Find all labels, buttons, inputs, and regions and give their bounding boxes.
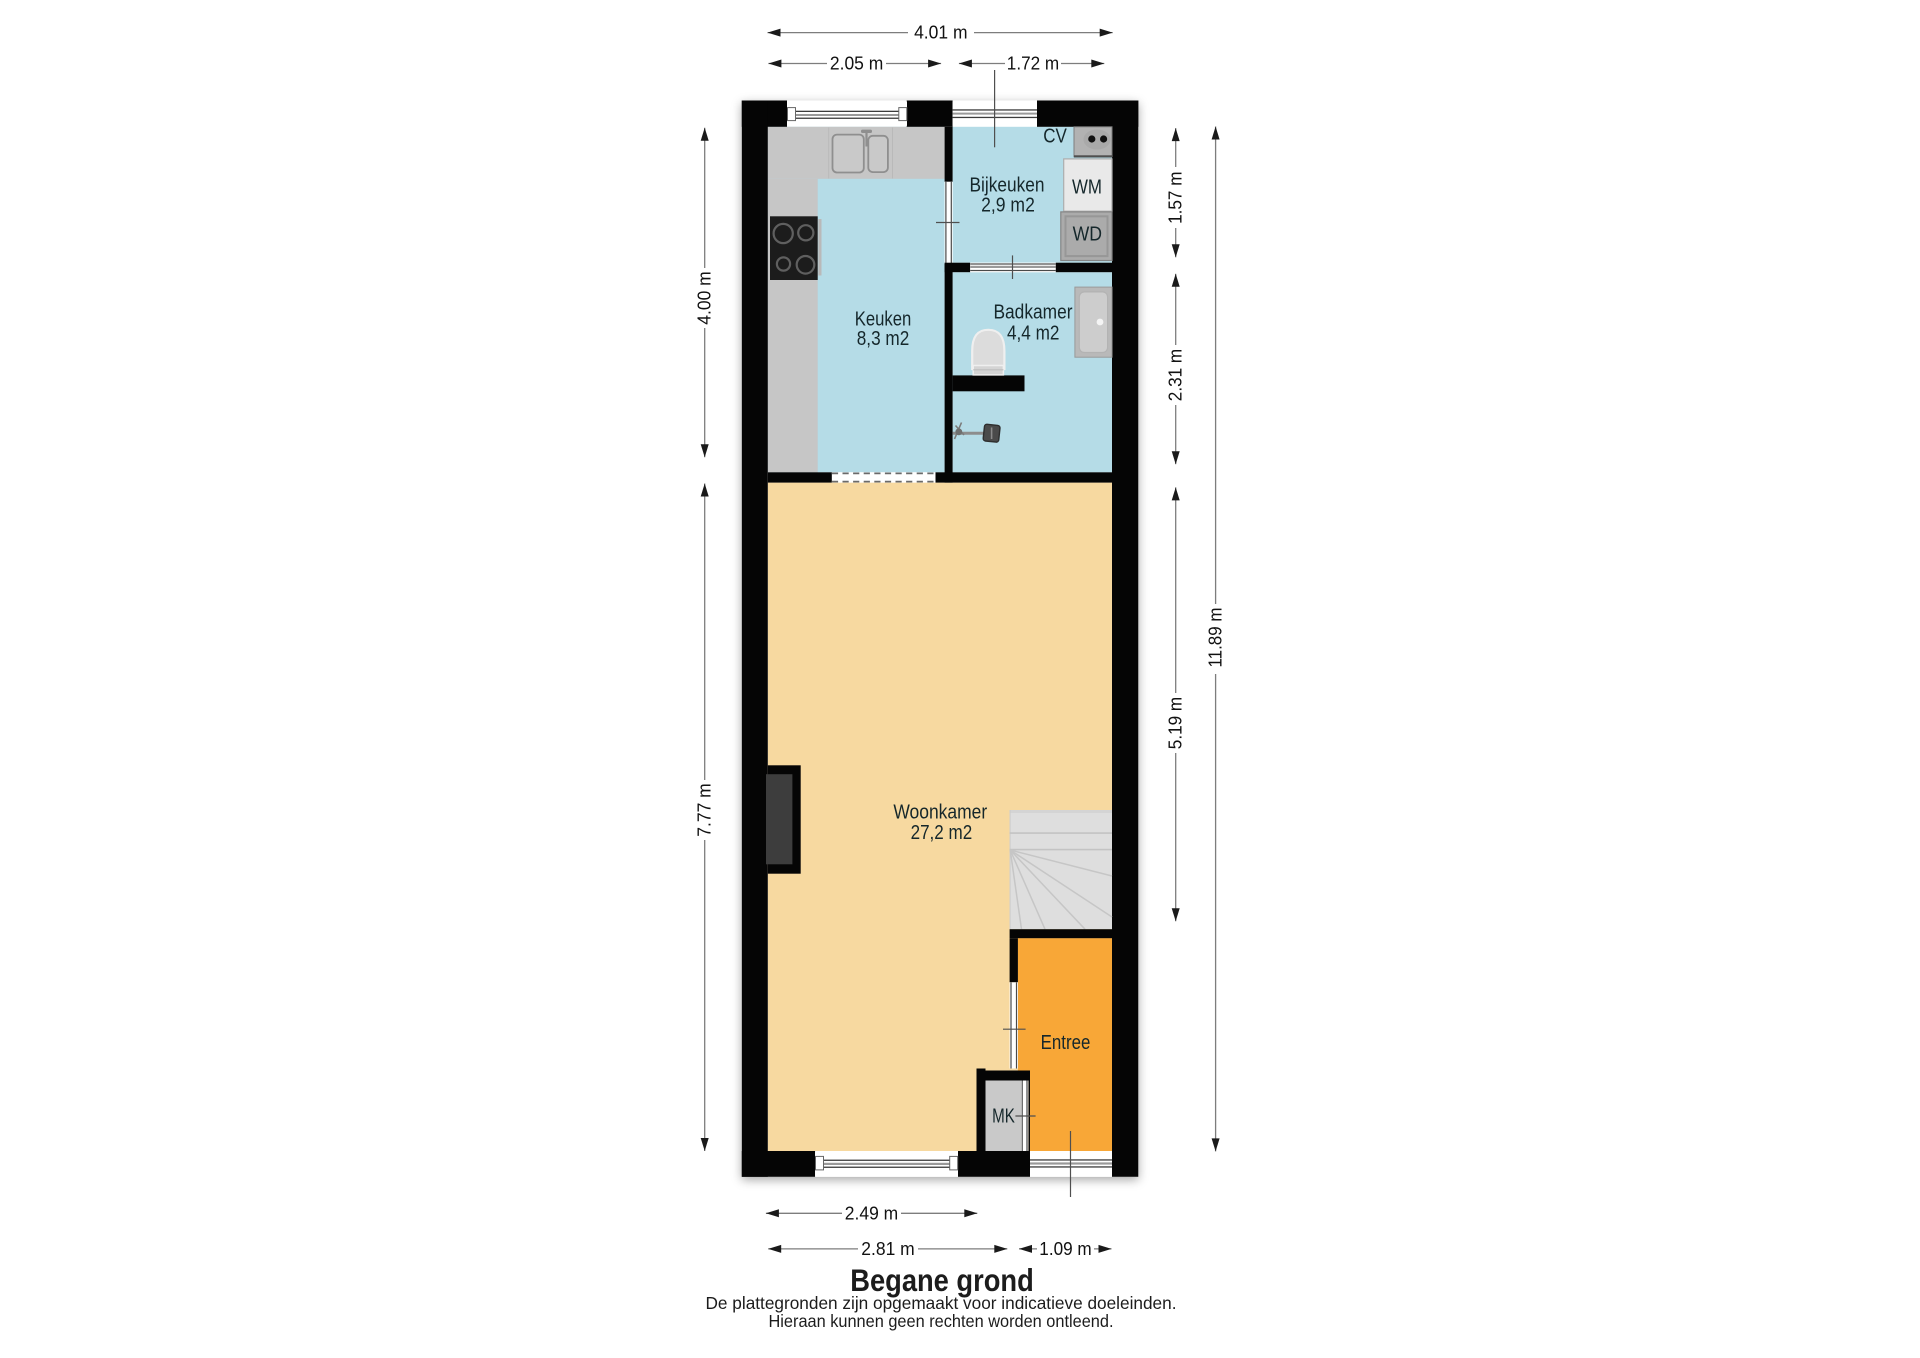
svg-text:4.01 m: 4.01 m [914,22,967,43]
svg-text:2,9 m2: 2,9 m2 [981,194,1035,216]
svg-text:5.19 m: 5.19 m [1165,697,1186,749]
svg-text:Woonkamer: Woonkamer [893,801,987,823]
svg-text:4,4 m2: 4,4 m2 [1007,322,1060,344]
svg-text:WD: WD [1073,224,1102,246]
svg-text:De plattegronden zijn opgemaak: De plattegronden zijn opgemaakt voor ind… [706,1293,1177,1313]
svg-text:1.72 m: 1.72 m [1007,53,1059,74]
svg-text:Bijkeuken: Bijkeuken [970,174,1045,196]
svg-text:MK: MK [992,1105,1015,1127]
svg-text:Badkamer: Badkamer [993,301,1072,323]
svg-text:Hieraan kunnen geen rechten wo: Hieraan kunnen geen rechten worden ontle… [769,1311,1114,1331]
svg-text:1.09 m: 1.09 m [1039,1238,1091,1259]
svg-text:8,3 m2: 8,3 m2 [857,328,910,350]
svg-text:2.49 m: 2.49 m [845,1202,898,1223]
svg-text:7.77 m: 7.77 m [694,783,715,836]
svg-text:WM: WM [1072,176,1102,198]
svg-text:1.57 m: 1.57 m [1165,171,1186,223]
svg-text:4.00 m: 4.00 m [694,271,715,324]
svg-text:11.89 m: 11.89 m [1205,608,1226,668]
svg-text:2.81 m: 2.81 m [861,1238,914,1259]
svg-text:2.05 m: 2.05 m [830,53,883,74]
svg-text:27,2 m2: 27,2 m2 [911,822,973,844]
svg-text:Entree: Entree [1041,1032,1091,1054]
svg-text:CV: CV [1043,125,1067,147]
svg-text:2.31 m: 2.31 m [1165,349,1186,401]
